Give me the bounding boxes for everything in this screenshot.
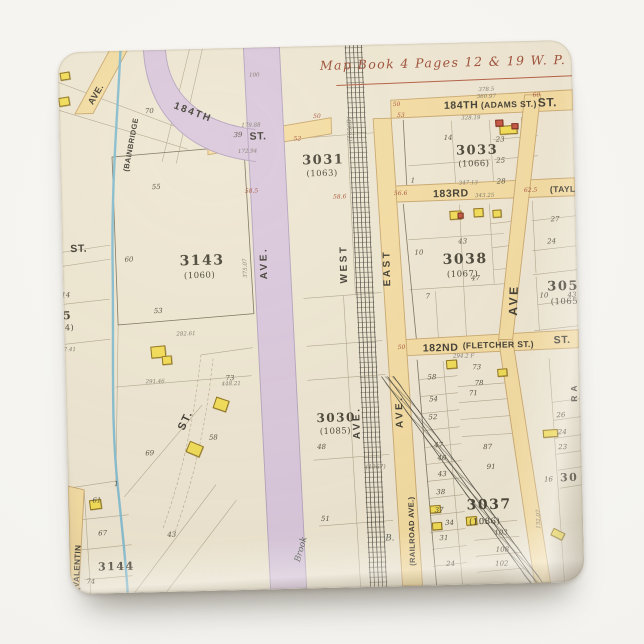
- map-label: 132.07: [537, 509, 543, 528]
- map-label: (FLETCHER ST.): [463, 340, 534, 350]
- map-label: 43: [167, 532, 176, 539]
- map-label: 25: [496, 157, 505, 164]
- map-label: (1063): [306, 170, 337, 179]
- map-label: 343.25: [475, 194, 494, 200]
- map-label: 38: [436, 489, 445, 496]
- map-label: 50: [398, 345, 406, 351]
- product-photo: Map Book 4 Pages 12 & 19 W. P.184TH(ADAM…: [0, 0, 644, 644]
- map-label: 50: [393, 102, 401, 108]
- map-label: 56.6: [394, 191, 408, 197]
- map-label: 26: [556, 412, 565, 419]
- map-label: 23: [558, 444, 567, 451]
- map-label: 3143: [179, 253, 224, 268]
- map-label: 3144: [98, 561, 135, 573]
- map-label: 62.5: [524, 188, 538, 194]
- map-label: 1: [114, 481, 119, 488]
- map-label: 58: [427, 374, 436, 381]
- map-label: ST.: [177, 409, 196, 432]
- map-label: 10: [539, 292, 548, 299]
- map-label: (984): [57, 324, 74, 333]
- map-label: 53: [397, 113, 405, 119]
- map-label: 7: [425, 293, 430, 300]
- map-label: AVE.: [395, 395, 406, 428]
- map-label: 67: [98, 530, 107, 537]
- map-label: 102: [495, 560, 509, 567]
- map-label: B.: [385, 534, 394, 543]
- map-label: 108: [496, 546, 510, 553]
- map-label: (1060): [184, 272, 215, 281]
- map-label: 184TH: [444, 100, 479, 111]
- map-label: 14: [61, 292, 70, 299]
- map-label: 87: [483, 444, 492, 451]
- map-label: 172.94: [238, 150, 257, 156]
- map-label: 54: [429, 396, 438, 403]
- map-label: WEST: [339, 244, 350, 283]
- map-label: ST.: [249, 131, 266, 142]
- map-label: 48: [317, 444, 326, 451]
- map-label: 14: [444, 135, 453, 142]
- map-label: 227.41: [57, 348, 76, 354]
- map-label: 43: [458, 238, 467, 245]
- map-label: 58.6: [333, 194, 347, 200]
- map-label: 91: [487, 464, 496, 471]
- map-label: 69: [145, 450, 154, 457]
- map-label: 39: [233, 132, 242, 139]
- map-label: 37: [435, 507, 444, 514]
- map-label: 43: [438, 471, 447, 478]
- map-label: 50: [313, 114, 321, 120]
- map-label: 24: [547, 238, 556, 245]
- map-label: (ADAMS ST.): [481, 100, 537, 110]
- map-label: 294.2 F: [453, 354, 474, 360]
- map-label: Map Book 4 Pages 12 & 19 W. P.: [320, 54, 567, 73]
- map-label: (1086): [469, 518, 500, 527]
- map-magnet: Map Book 4 Pages 12 & 19 W. P.184TH(ADAM…: [57, 40, 584, 594]
- map-label: 60: [124, 257, 133, 264]
- map-label: 182ND: [423, 343, 459, 354]
- map-label: 71: [469, 390, 478, 397]
- labels-layer: Map Book 4 Pages 12 & 19 W. P.184TH(ADAM…: [57, 40, 584, 594]
- map-label: 291.46: [145, 380, 164, 386]
- map-label: 27: [551, 216, 560, 223]
- map-label: 1: [411, 178, 416, 185]
- map-label: 47: [434, 442, 443, 449]
- map-label: 31: [439, 535, 448, 542]
- map-label: 55: [152, 184, 161, 191]
- map-label: (1056B): [347, 117, 354, 142]
- map-label: 30: [560, 472, 579, 483]
- map-label: 448.21: [222, 382, 241, 388]
- map-label: 60: [533, 93, 541, 99]
- map-label: ST.: [70, 244, 87, 255]
- map-label: AVE: [507, 284, 520, 316]
- map-label: 328.19: [461, 116, 480, 122]
- map-label: AVE.: [259, 247, 270, 280]
- map-label: RA: [570, 381, 579, 401]
- map-label: 375.07: [244, 258, 250, 277]
- map-label: 360.97: [477, 95, 496, 101]
- map-label: 100: [249, 73, 260, 79]
- map-label: 3050: [547, 279, 584, 293]
- map-label: 28: [497, 178, 506, 185]
- map-label: 73: [472, 364, 481, 371]
- map-label: 10: [414, 249, 423, 256]
- map-label: AVE.: [87, 83, 106, 106]
- map-label: 58: [209, 435, 218, 442]
- map-label: 43: [567, 292, 576, 299]
- map-label: 46: [437, 455, 446, 462]
- map-label: 347.13: [459, 181, 478, 187]
- map-label: 3038: [442, 252, 487, 267]
- map-label: (1085): [320, 427, 351, 436]
- map-label: 16: [544, 476, 553, 483]
- map-label: 78: [475, 380, 484, 387]
- map-label: 3031: [302, 153, 344, 167]
- map-label: EAST: [382, 250, 393, 287]
- map-label: (BAINBRIDGE: [122, 117, 139, 172]
- map-label: 58.5: [245, 188, 259, 194]
- map-label: 24: [558, 429, 567, 436]
- map-label: (RAILROAD AVE.): [407, 496, 416, 566]
- map-label: 51: [321, 516, 330, 523]
- map-label: 74: [86, 579, 95, 586]
- map-label: 53: [154, 308, 163, 315]
- map-label: Brook: [294, 536, 309, 563]
- map-label: 378.5: [478, 88, 494, 94]
- map-label: (1067): [366, 464, 386, 470]
- map-label: 34: [445, 520, 454, 527]
- map-label: (TAYLOR: [550, 184, 585, 193]
- map-label: 61: [92, 497, 101, 504]
- map-label: 282.61: [176, 332, 195, 338]
- map-label: (VALENTIN: [73, 545, 83, 591]
- map-label: 52: [294, 136, 302, 142]
- map-label: ST.: [554, 335, 571, 346]
- map-label: 183RD: [433, 188, 469, 199]
- map-label: 103: [494, 530, 508, 537]
- map-label: 70: [145, 108, 154, 115]
- map-label: (1066): [458, 160, 489, 169]
- map-label: 24: [446, 561, 455, 568]
- map-label: 179.88: [241, 123, 260, 129]
- map-label: (1065): [551, 298, 582, 307]
- map-label: 45: [57, 310, 72, 321]
- map-label: 3033: [456, 144, 498, 158]
- map-label: AVE.: [352, 406, 363, 439]
- map-label: 3037: [466, 497, 511, 512]
- map-label: 3030: [316, 411, 356, 424]
- map-label: 184TH: [172, 101, 213, 124]
- map-label: 52: [428, 414, 437, 421]
- map-label: 47: [471, 275, 480, 282]
- map-label: 23: [496, 136, 505, 143]
- map-label: 73: [225, 375, 234, 382]
